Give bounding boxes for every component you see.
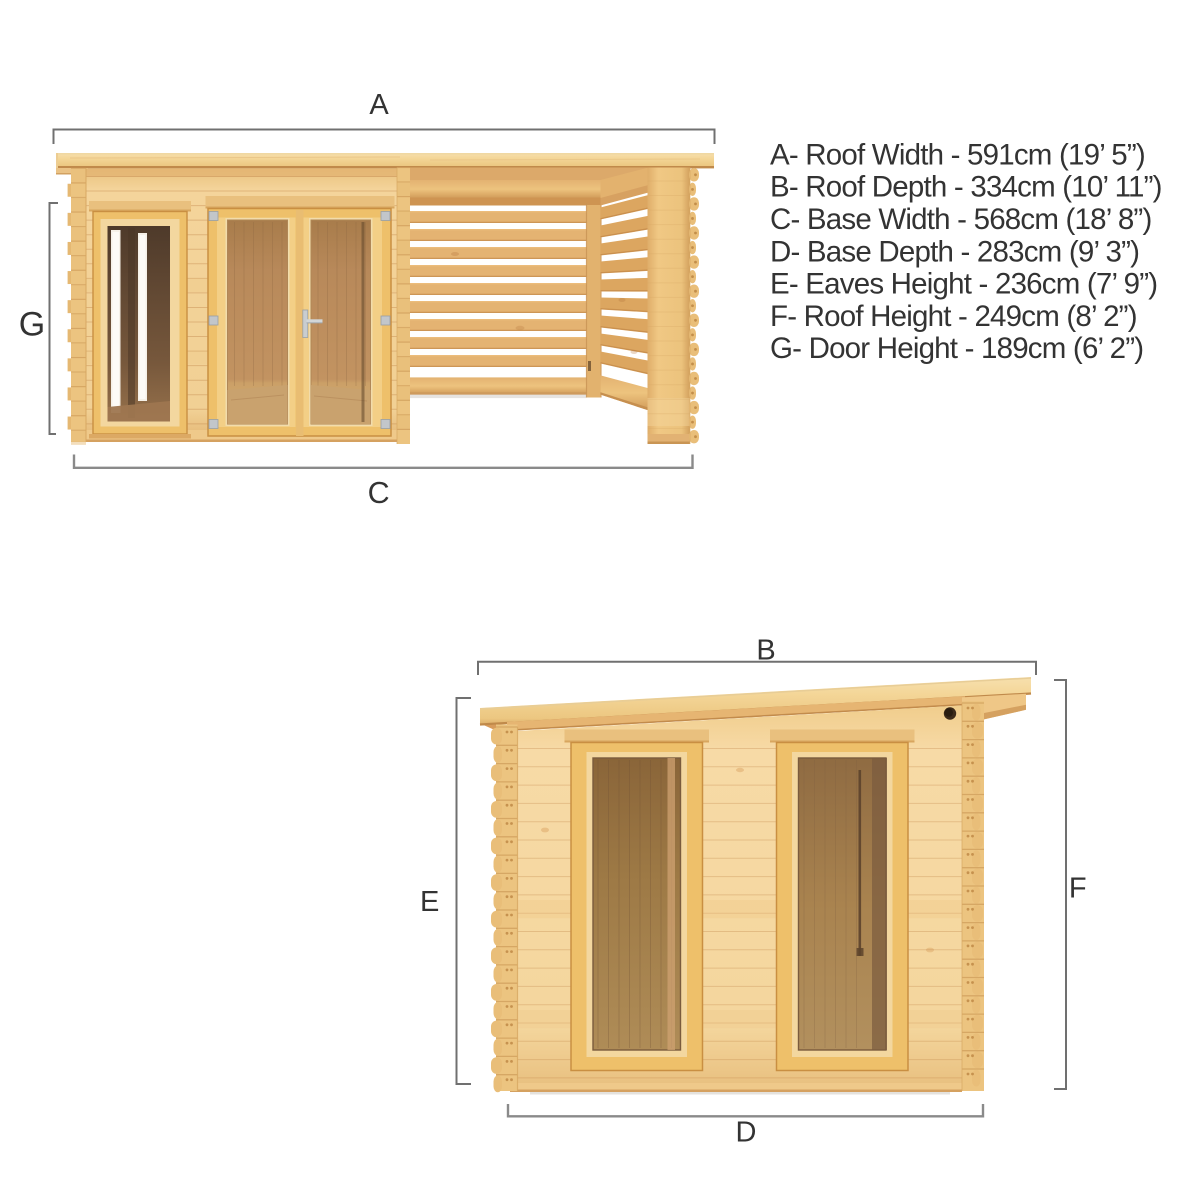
svg-text:F: F bbox=[1069, 873, 1087, 905]
svg-text:F- Roof Height - 249cm (8’ 2”): F- Roof Height - 249cm (8’ 2”) bbox=[770, 300, 1137, 333]
svg-text:A: A bbox=[369, 89, 389, 121]
svg-text:A- Roof Width - 591cm (19’ 5”): A- Roof Width - 591cm (19’ 5”) bbox=[770, 138, 1145, 171]
svg-text:G: G bbox=[19, 305, 45, 343]
svg-text:D- Base Depth - 283cm (9’ 3”): D- Base Depth - 283cm (9’ 3”) bbox=[770, 235, 1139, 268]
svg-text:C: C bbox=[368, 476, 390, 510]
svg-text:G- Door Height - 189cm (6’ 2”): G- Door Height - 189cm (6’ 2”) bbox=[770, 332, 1143, 365]
svg-text:C- Base Width - 568cm (18’ 8”): C- Base Width - 568cm (18’ 8”) bbox=[770, 203, 1151, 236]
svg-text:D: D bbox=[736, 1116, 757, 1148]
svg-text:E- Eaves Height - 236cm (7’ 9”: E- Eaves Height - 236cm (7’ 9”) bbox=[770, 268, 1157, 301]
svg-text:B- Roof Depth - 334cm (10’ 11”: B- Roof Depth - 334cm (10’ 11”) bbox=[770, 171, 1162, 204]
svg-text:E: E bbox=[420, 886, 439, 918]
